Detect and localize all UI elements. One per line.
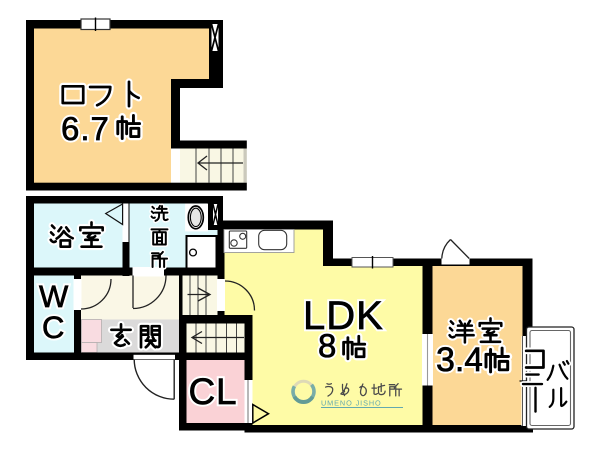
- svg-text:W: W: [39, 279, 69, 314]
- svg-text:C: C: [42, 310, 64, 345]
- svg-text:8: 8: [318, 327, 336, 364]
- svg-text:6.7: 6.7: [61, 110, 110, 147]
- svg-text:L: L: [216, 371, 237, 412]
- svg-text:UMENO JISHO: UMENO JISHO: [321, 399, 382, 408]
- svg-text:C: C: [189, 371, 216, 412]
- svg-text:LDK: LDK: [303, 294, 384, 338]
- svg-text:3.4: 3.4: [436, 341, 483, 379]
